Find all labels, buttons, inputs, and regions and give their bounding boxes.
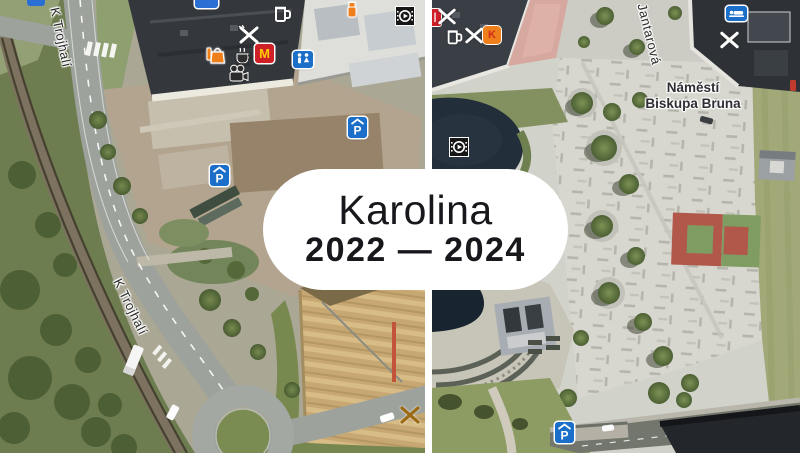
- restaurant-cutlery-icon[interactable]: [436, 7, 458, 26]
- place-label-line1: Náměstí: [612, 80, 774, 96]
- partial-blue-icon[interactable]: [27, 0, 45, 6]
- spray-icon[interactable]: [344, 1, 360, 18]
- svg-text:P: P: [215, 172, 223, 186]
- parking-garage-icon[interactable]: P: [348, 117, 367, 138]
- restaurant-cutlery-icon[interactable]: [463, 26, 485, 45]
- place-label-namesti-biskupa-bruna: Náměstí Biskupa Bruna: [612, 80, 774, 111]
- burger-letter: K: [488, 30, 496, 41]
- parking-garage-icon[interactable]: P: [210, 165, 229, 186]
- beer-icon[interactable]: [272, 3, 294, 25]
- restaurant-cutlery-icon[interactable]: [718, 30, 741, 50]
- svg-text:P: P: [353, 124, 361, 138]
- partial-blue-icon[interactable]: [195, 0, 218, 8]
- panorama-icon[interactable]: [450, 138, 468, 156]
- restaurant-cutlery-icon[interactable]: [237, 25, 261, 45]
- pill-title: Karolina: [338, 189, 492, 232]
- mcdonalds-icon[interactable]: M: [255, 44, 274, 63]
- beer-icon[interactable]: [445, 27, 465, 47]
- parking-garage-icon[interactable]: P: [555, 422, 574, 443]
- pill-year-range: 2022 — 2024: [305, 232, 526, 269]
- restaurant-cutlery-orange-icon[interactable]: [398, 404, 422, 426]
- hotel-bed-icon[interactable]: [726, 6, 747, 21]
- karolina-comparison: K Trojhalí K Trojhalí Jantarová Náměstí …: [0, 0, 800, 453]
- burger-icon[interactable]: K: [483, 26, 501, 44]
- title-pill: Karolina 2022 — 2024: [263, 169, 568, 290]
- mcdonalds-letter: M: [259, 47, 270, 60]
- shopping-icon[interactable]: [205, 44, 227, 65]
- wc-icon[interactable]: [293, 51, 313, 68]
- place-label-line2: Biskupa Bruna: [612, 96, 774, 112]
- svg-text:P: P: [560, 429, 568, 443]
- panorama-icon[interactable]: [396, 7, 414, 25]
- movie-camera-icon[interactable]: [227, 64, 250, 83]
